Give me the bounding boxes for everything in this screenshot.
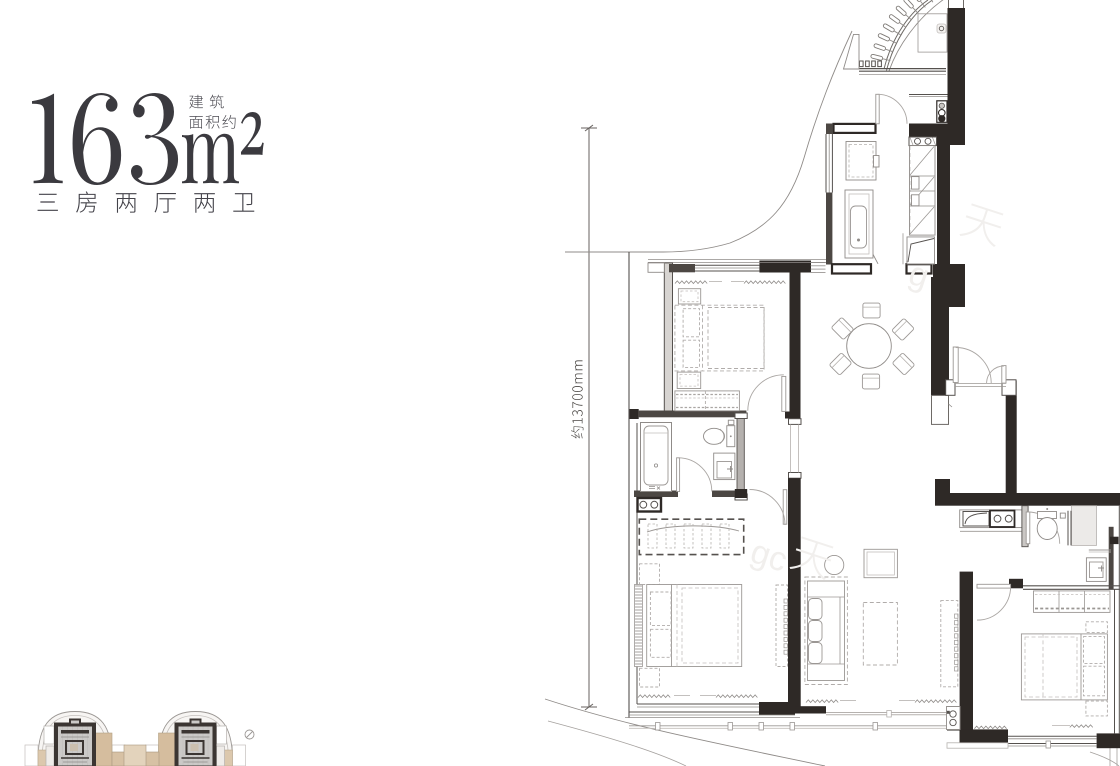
- svg-text:gc: gc: [746, 532, 792, 579]
